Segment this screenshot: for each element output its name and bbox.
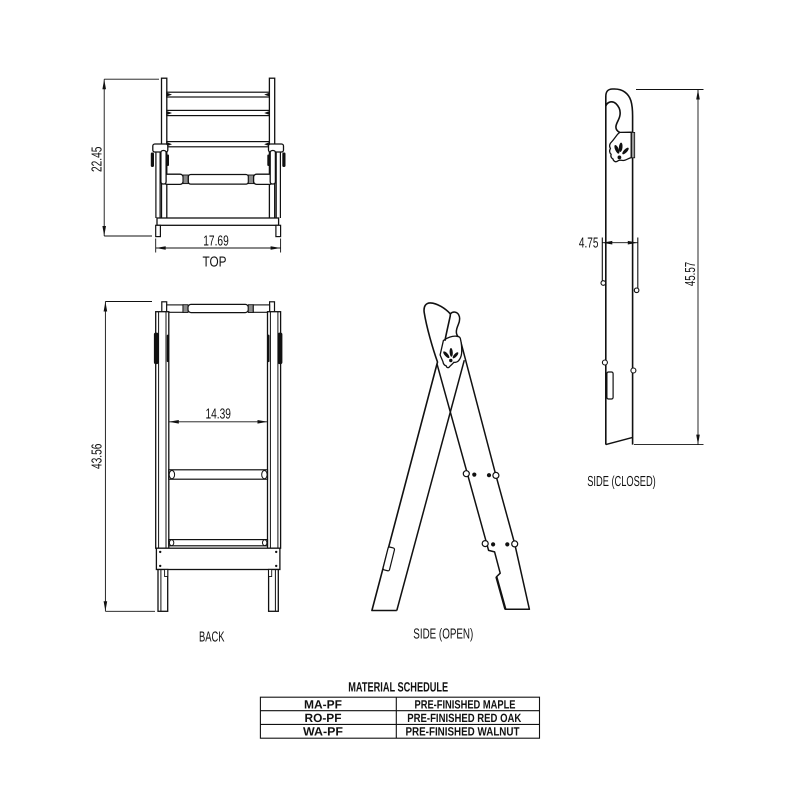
svg-text:17.69: 17.69: [203, 234, 229, 250]
svg-text:PRE-FINISHED MAPLE: PRE-FINISHED MAPLE: [415, 698, 516, 712]
svg-text:14.39: 14.39: [205, 407, 231, 423]
svg-text:MATERIAL SCHEDULE: MATERIAL SCHEDULE: [348, 679, 448, 694]
svg-text:PRE-FINISHED RED OAK: PRE-FINISHED RED OAK: [407, 711, 521, 725]
svg-text:PRE-FINISHED WALNUT: PRE-FINISHED WALNUT: [406, 725, 521, 739]
svg-text:WA-PF: WA-PF: [303, 725, 343, 739]
svg-text:45.57: 45.57: [683, 262, 699, 286]
svg-text:SIDE (OPEN): SIDE (OPEN): [413, 627, 473, 643]
svg-text:TOP: TOP: [203, 254, 227, 270]
svg-text:4.75: 4.75: [579, 236, 599, 252]
svg-text:43.56: 43.56: [90, 444, 106, 470]
svg-text:SIDE (CLOSED): SIDE (CLOSED): [587, 474, 656, 490]
svg-text:RO-PF: RO-PF: [305, 711, 342, 725]
svg-text:MA-PF: MA-PF: [304, 698, 342, 712]
svg-text:22.45: 22.45: [89, 147, 105, 173]
svg-text:BACK: BACK: [199, 630, 225, 646]
